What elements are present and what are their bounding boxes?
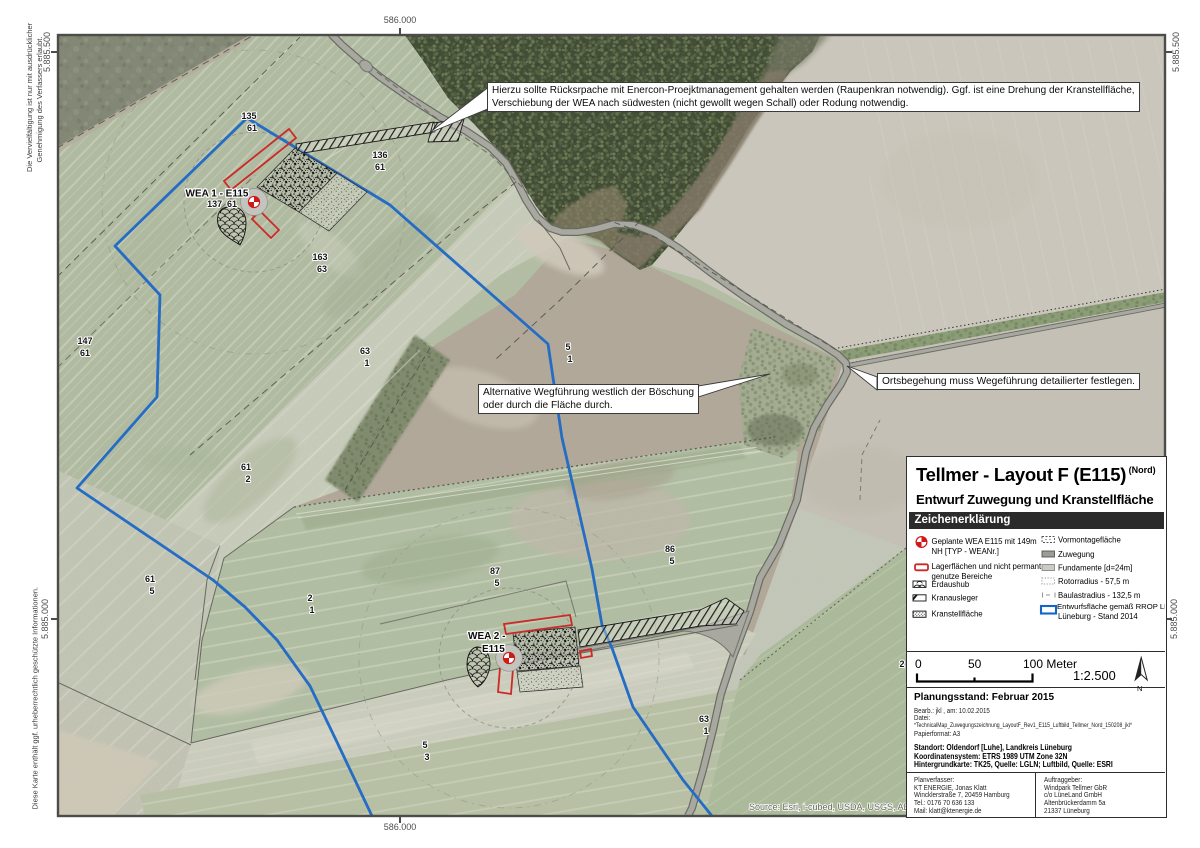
svg-text:Kranausleger: Kranausleger [932,594,979,603]
svg-text:Fundamente [d=24m]: Fundamente [d=24m] [1058,564,1132,573]
svg-text:Zuwegung: Zuwegung [1058,550,1094,559]
svg-text:0: 0 [915,657,922,671]
svg-text:63: 63 [317,264,327,274]
svg-text:1: 1 [309,605,314,615]
svg-text:61: 61 [375,162,385,172]
svg-text:Geplante WEA E115 mit 149m: Geplante WEA E115 mit 149m [932,537,1037,546]
svg-text:61: 61 [145,574,155,584]
svg-text:5: 5 [669,556,674,566]
svg-text:E115: E115 [482,644,505,655]
svg-text:87: 87 [490,566,500,576]
svg-text:61: 61 [80,348,90,358]
svg-text:Vormontagefläche: Vormontagefläche [1058,536,1121,545]
svg-text:Entwurfsfläche gemäß RROP LK: Entwurfsfläche gemäß RROP LK [1057,602,1165,611]
svg-text:1: 1 [364,358,369,368]
svg-text:5: 5 [494,578,499,588]
svg-text:Kranstellfläche: Kranstellfläche [932,610,983,619]
svg-text:63: 63 [699,714,709,724]
svg-text:2: 2 [899,659,904,669]
svg-text:5: 5 [565,342,570,352]
svg-text:86: 86 [665,544,675,554]
svg-text:163: 163 [312,252,327,262]
svg-text:50: 50 [968,657,982,671]
svg-text:147: 147 [77,336,92,346]
svg-text:NH [TYP - WEANr.]: NH [TYP - WEANr.] [932,547,999,556]
svg-text:WEA 1 - E115: WEA 1 - E115 [186,189,249,200]
svg-text:5: 5 [422,740,427,750]
svg-text:WEA 2 -: WEA 2 - [468,631,505,642]
svg-text:61: 61 [227,199,237,209]
svg-text:1: 1 [703,726,708,736]
svg-text:61: 61 [247,123,257,133]
svg-text:3: 3 [424,752,429,762]
svg-text:135: 135 [241,111,256,121]
svg-text:63: 63 [360,346,370,356]
svg-text:2: 2 [245,474,250,484]
svg-text:Source: Esri, i-cubed, USDA, U: Source: Esri, i-cubed, USDA, USGS, AEX, … [749,802,928,812]
svg-text:136: 136 [372,150,387,160]
svg-text:61: 61 [241,462,251,472]
svg-text:2: 2 [307,593,312,603]
svg-text:1:2.500: 1:2.500 [1073,668,1116,683]
svg-text:5: 5 [149,586,154,596]
svg-text:Rotorradius - 57,5 m: Rotorradius - 57,5 m [1058,577,1129,586]
svg-text:Lüneburg - Stand 2014: Lüneburg - Stand 2014 [1058,612,1138,621]
svg-text:Erdaushub: Erdaushub [932,580,970,589]
svg-text:Lagerflächen und nicht permant: Lagerflächen und nicht permant [932,562,1042,571]
svg-text:Baulastradius - 132,5 m: Baulastradius - 132,5 m [1058,591,1140,600]
svg-text:100 Meter: 100 Meter [1023,657,1077,671]
svg-text:137: 137 [207,199,222,209]
svg-text:1: 1 [567,354,572,364]
